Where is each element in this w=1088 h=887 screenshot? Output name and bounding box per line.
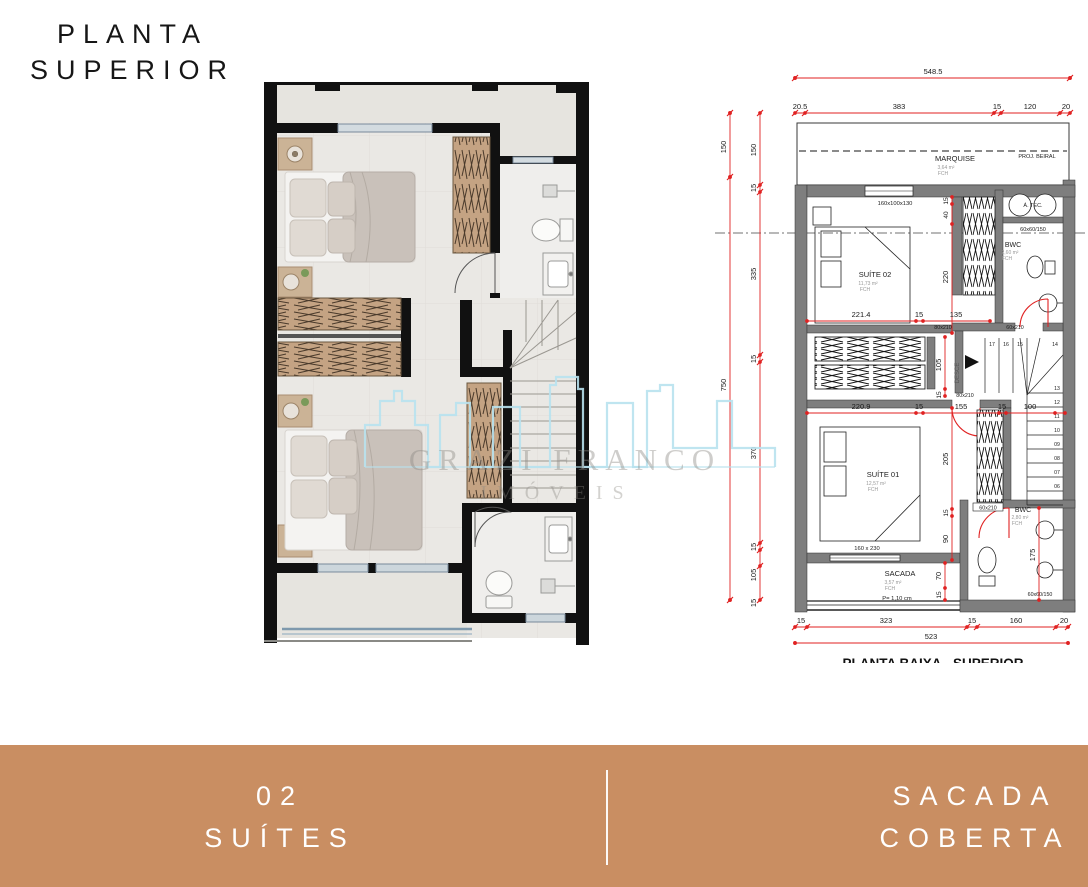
rendered-floorplan xyxy=(258,80,595,655)
lamp-center xyxy=(292,151,298,157)
suite01-fch: FCH xyxy=(868,487,879,493)
pillow xyxy=(290,220,326,256)
svg-text:15: 15 xyxy=(1017,342,1023,348)
pillow xyxy=(291,480,327,518)
sacada-fch: FCH xyxy=(885,586,896,592)
dim: 105 xyxy=(749,569,758,582)
shower-bottom-tag: 60x60/150 xyxy=(1028,592,1053,598)
terrace-floor-right xyxy=(500,123,576,160)
dim: 15 xyxy=(749,543,758,551)
dim: 15 xyxy=(943,197,950,205)
desce-arrow xyxy=(965,355,979,369)
svg-text:14: 14 xyxy=(1052,342,1058,348)
dim: 70 xyxy=(934,572,943,580)
svg-text:11: 11 xyxy=(1054,414,1059,420)
page-title-line2: SUPERIOR xyxy=(20,52,245,88)
dim: 120 xyxy=(1024,102,1037,111)
middle-wardrobes xyxy=(278,298,401,376)
pillow xyxy=(290,179,326,217)
tech-drawing-title: PLANTA BAIXA - SUPERIOR xyxy=(842,656,1023,663)
dim: 90 xyxy=(941,535,950,543)
door-arc-suite01 xyxy=(952,408,980,436)
dim: 150 xyxy=(749,144,758,157)
svg-text:06: 06 xyxy=(1054,484,1060,490)
sink-basin xyxy=(548,261,568,287)
dim: 15 xyxy=(968,616,976,625)
bwc-top-fch: FCH xyxy=(1002,256,1013,262)
toilet-bowl xyxy=(486,571,512,595)
sacada-label: SACADA xyxy=(885,569,916,578)
balcony-door-glass1 xyxy=(318,564,368,572)
door-bwc-top-tag: 60x210 xyxy=(1006,325,1023,331)
plant xyxy=(301,398,309,406)
dim: 220.9 xyxy=(852,402,871,411)
page-title: PLANTA SUPERIOR xyxy=(20,16,245,88)
toilet-tank xyxy=(486,596,512,608)
technical-floorplan: MARQUISE 3,64 m² FCH PROJ. BEIRAL xyxy=(715,55,1088,663)
svg-text:13: 13 xyxy=(1054,386,1060,392)
toilet-tank xyxy=(560,219,573,241)
dim: 155 xyxy=(955,402,968,411)
dim: 15 xyxy=(998,402,1006,411)
dim: 15 xyxy=(749,184,758,192)
bed02-tag: 160x100x130 xyxy=(878,201,913,207)
svg-text:08: 08 xyxy=(1054,456,1060,462)
footer-right-line1: SACADA xyxy=(845,775,1088,817)
wardrobe xyxy=(467,383,501,498)
dim: 548.5 xyxy=(924,67,943,76)
dim: 383 xyxy=(893,102,906,111)
dim: 20 xyxy=(1060,616,1068,625)
door-bwc-bottom-tag: 60x210 xyxy=(979,506,996,512)
dim: 205 xyxy=(941,453,950,466)
svg-text:17: 17 xyxy=(989,342,995,348)
tech-bwc-bottom: 60x210 BWC 2,80 m² FCH 60x60/150 xyxy=(973,503,1063,598)
wardrobe-strip xyxy=(278,298,401,330)
dim: 20 xyxy=(1062,102,1070,111)
dim: 40 xyxy=(943,211,950,219)
wardrobe xyxy=(453,137,490,253)
dim: 15 xyxy=(993,102,1001,111)
dim: 15 xyxy=(943,509,950,517)
svg-text:16: 16 xyxy=(1003,342,1009,348)
footer-divider xyxy=(606,770,608,865)
lamp xyxy=(283,274,299,290)
wardrobe-strip xyxy=(278,342,401,376)
footer-left-line2: SUÍTES xyxy=(170,817,390,859)
dim: 221.4 xyxy=(852,310,871,319)
tech-closets xyxy=(815,337,925,389)
pillow xyxy=(291,436,327,476)
pillow xyxy=(328,219,355,253)
dim: 15 xyxy=(936,591,943,599)
dim: 15 xyxy=(749,599,758,607)
dim: 150 xyxy=(719,141,728,154)
pillow xyxy=(329,440,357,476)
bwc-top-label: BWC xyxy=(1005,242,1021,249)
bwc-bottom-label: BWC xyxy=(1015,507,1031,514)
shower-drain xyxy=(541,579,555,593)
shower-top-tag: 60x60/150 xyxy=(1020,227,1046,233)
window-suite02 xyxy=(338,124,432,132)
bed01-tag: 160 x 230 xyxy=(854,546,879,552)
door-arc-bwc-bottom xyxy=(979,508,1009,538)
faucet xyxy=(568,537,572,541)
door-stair-tag: 80x210 xyxy=(956,393,973,399)
dim: 220 xyxy=(941,271,950,284)
sink-basin xyxy=(549,525,568,553)
pillow xyxy=(329,478,357,514)
dim: 135 xyxy=(950,310,963,319)
dim: 523 xyxy=(925,632,938,641)
tech-suite01: 80x210 SUÍTE 01 12,57 m² FCH xyxy=(820,393,1003,541)
wardrobe-divider xyxy=(278,334,401,338)
dim: 175 xyxy=(1028,549,1037,562)
window-bath-bottom xyxy=(526,614,565,622)
tech-walls xyxy=(795,180,1075,612)
footer-left-feature: 02 SUÍTES xyxy=(170,775,390,859)
footer-left-line1: 02 xyxy=(170,775,390,817)
footer-right-feature: SACADA COBERTA xyxy=(845,775,1088,859)
pillow xyxy=(328,182,355,216)
marquise-fch: FCH xyxy=(938,171,949,177)
dim: 15 xyxy=(936,391,943,399)
dim: 15 xyxy=(797,616,805,625)
suite02-fch: FCH xyxy=(860,287,871,293)
suite01-label: SUÍTE 01 xyxy=(867,470,900,479)
dim: 15 xyxy=(749,355,758,363)
dim: 15 xyxy=(915,402,923,411)
marquise: MARQUISE 3,64 m² FCH PROJ. BEIRAL xyxy=(797,123,1069,185)
dim: 105 xyxy=(934,359,943,372)
plant xyxy=(301,269,309,277)
page-title-line1: PLANTA xyxy=(20,16,245,52)
tech-suite02: SUÍTE 02 11,73 m² FCH xyxy=(813,197,995,323)
shower-head xyxy=(543,185,557,197)
dim: 323 xyxy=(880,616,893,625)
dim: 160 xyxy=(1010,616,1023,625)
dim: 750 xyxy=(719,379,728,392)
desce-label: DESCE xyxy=(955,363,961,384)
page: PLANTA SUPERIOR xyxy=(0,0,1088,887)
svg-text:09: 09 xyxy=(1054,442,1060,448)
dim: 15 xyxy=(915,310,923,319)
svg-text:12: 12 xyxy=(1054,400,1060,406)
svg-text:07: 07 xyxy=(1054,470,1060,476)
proj-beiral-label: PROJ. BEIRAL xyxy=(1018,154,1055,160)
marquise-label: MARQUISE xyxy=(935,154,975,163)
faucet xyxy=(569,272,573,276)
window-bath-top xyxy=(513,157,553,163)
tech-atec-bwc: Á. TEC. 60x60/150 BWC 2,60 m² FCH 60x210 xyxy=(1002,194,1063,331)
dim: 335 xyxy=(749,268,758,281)
bwc-bottom-fch: FCH xyxy=(1012,521,1023,527)
lamp xyxy=(283,403,299,419)
dim: 370 xyxy=(749,447,758,460)
footer-right-line2: COBERTA xyxy=(845,817,1088,859)
balcony-door-glass2 xyxy=(376,564,448,572)
toilet-bowl xyxy=(532,219,560,241)
svg-text:10: 10 xyxy=(1054,428,1060,434)
door-suite02-tag: 80x210 xyxy=(934,325,951,331)
atec-label: Á. TEC. xyxy=(1023,202,1043,209)
footer-bar: 02 SUÍTES SACADA COBERTA xyxy=(0,745,1088,887)
suite02-label: SUÍTE 02 xyxy=(859,270,892,279)
dim: 100 xyxy=(1024,402,1037,411)
dim: 20.5 xyxy=(793,102,808,111)
